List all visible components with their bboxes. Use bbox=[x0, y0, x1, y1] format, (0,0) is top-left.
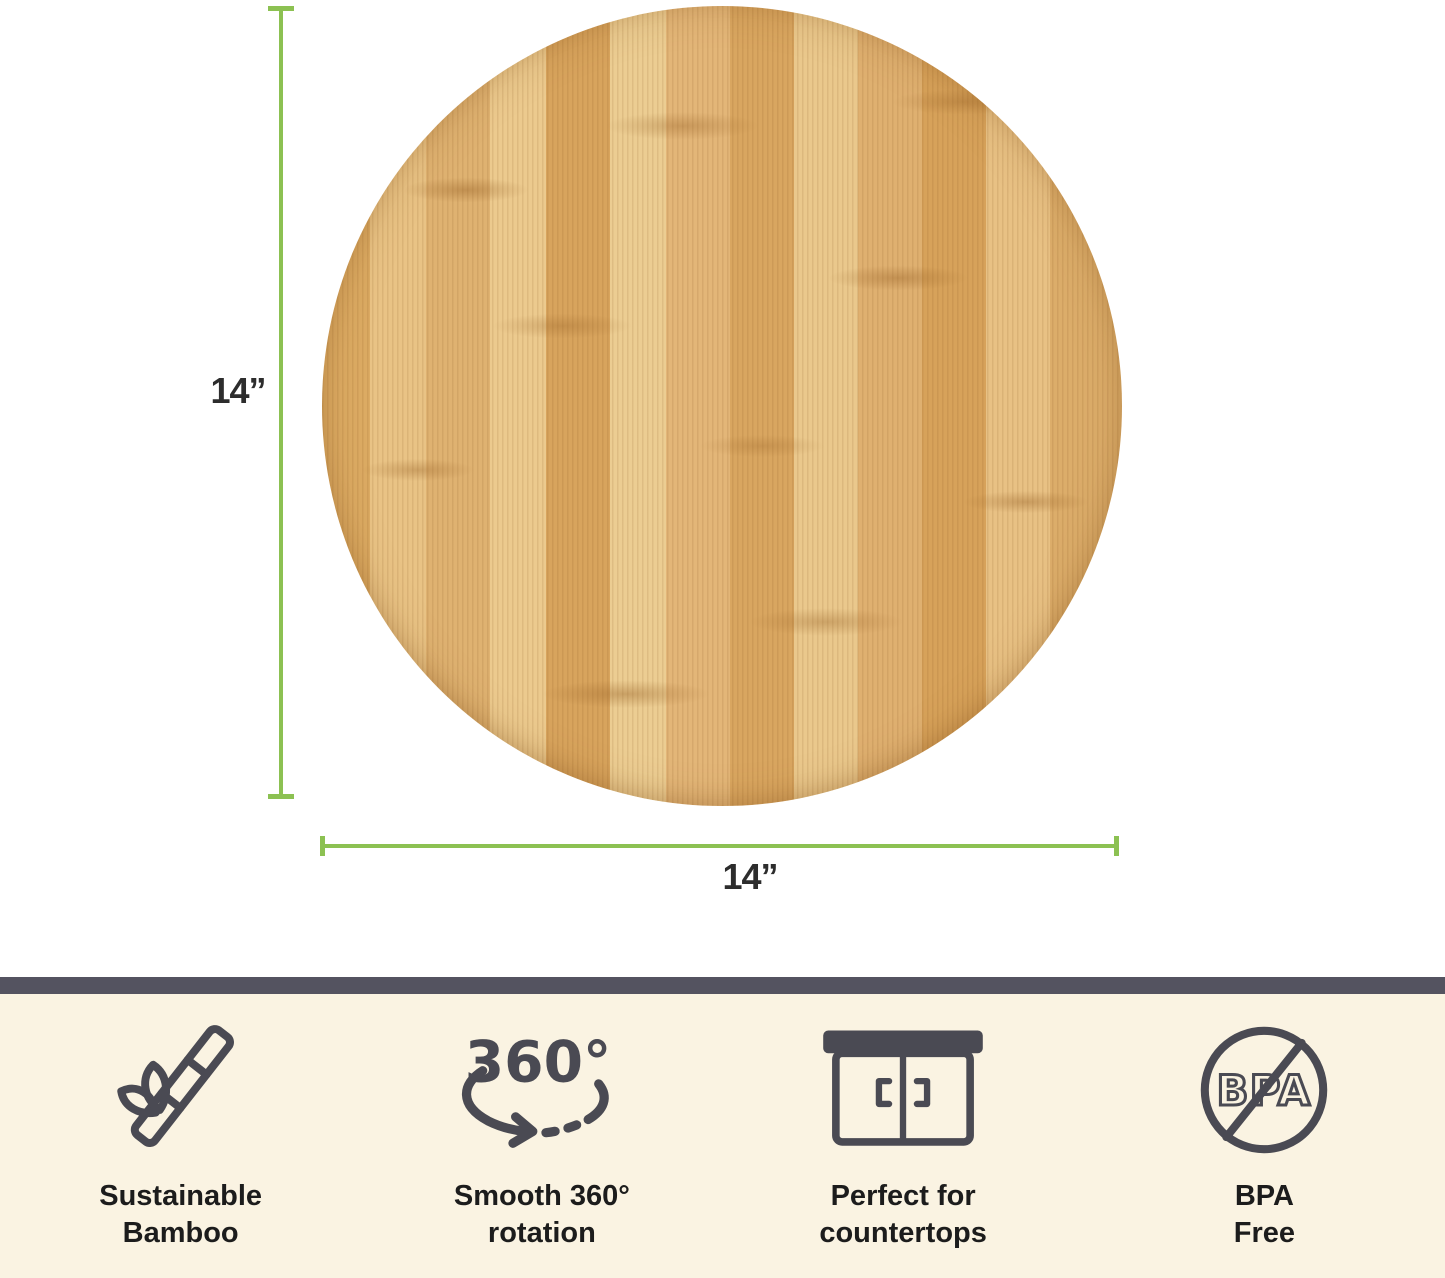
width-dimension-label: 14” bbox=[690, 856, 810, 898]
feature-label-line: Perfect for bbox=[819, 1178, 987, 1215]
feature-label: BPA Free bbox=[1234, 1178, 1295, 1252]
feature-label-line: BPA bbox=[1234, 1178, 1295, 1215]
feature-360-rotation: 360° Smooth 360° rotation bbox=[361, 994, 722, 1278]
horizontal-dimension-line bbox=[322, 844, 1117, 848]
horizontal-dimension-cap-right bbox=[1114, 836, 1119, 856]
feature-label-line: rotation bbox=[454, 1215, 630, 1252]
horizontal-dimension-cap-left bbox=[320, 836, 325, 856]
product-infographic: 14” 14” bbox=[0, 0, 1445, 1278]
bamboo-turntable-photo bbox=[322, 6, 1122, 806]
countertop-icon bbox=[808, 1014, 998, 1166]
vertical-dimension-cap-top bbox=[268, 6, 294, 11]
feature-label-line: Sustainable bbox=[99, 1178, 262, 1215]
feature-label: Smooth 360° rotation bbox=[454, 1178, 630, 1252]
height-dimension-label: 14” bbox=[198, 370, 278, 412]
feature-label-line: Smooth 360° bbox=[454, 1178, 630, 1215]
strip-body: Sustainable Bamboo 360° Smooth 360° bbox=[0, 994, 1445, 1278]
feature-sustainable-bamboo: Sustainable Bamboo bbox=[0, 994, 361, 1278]
rotation-360-icon: 360° bbox=[443, 1014, 641, 1166]
feature-label: Sustainable Bamboo bbox=[99, 1178, 262, 1252]
rotation-icon-text: 360° bbox=[465, 1029, 612, 1095]
feature-label-line: countertops bbox=[819, 1215, 987, 1252]
feature-label-line: Free bbox=[1234, 1215, 1295, 1252]
vertical-dimension-line bbox=[279, 8, 283, 797]
feature-strip: Sustainable Bamboo 360° Smooth 360° bbox=[0, 977, 1445, 1278]
feature-label: Perfect for countertops bbox=[819, 1178, 987, 1252]
strip-divider-bar bbox=[0, 977, 1445, 994]
feature-bpa-free: BPA BPA Free bbox=[1084, 994, 1445, 1278]
feature-countertops: Perfect for countertops bbox=[723, 994, 1084, 1278]
bamboo-icon bbox=[108, 1014, 254, 1166]
bpa-free-icon: BPA bbox=[1190, 1014, 1338, 1166]
feature-label-line: Bamboo bbox=[99, 1215, 262, 1252]
vertical-dimension-cap-bottom bbox=[268, 794, 294, 799]
